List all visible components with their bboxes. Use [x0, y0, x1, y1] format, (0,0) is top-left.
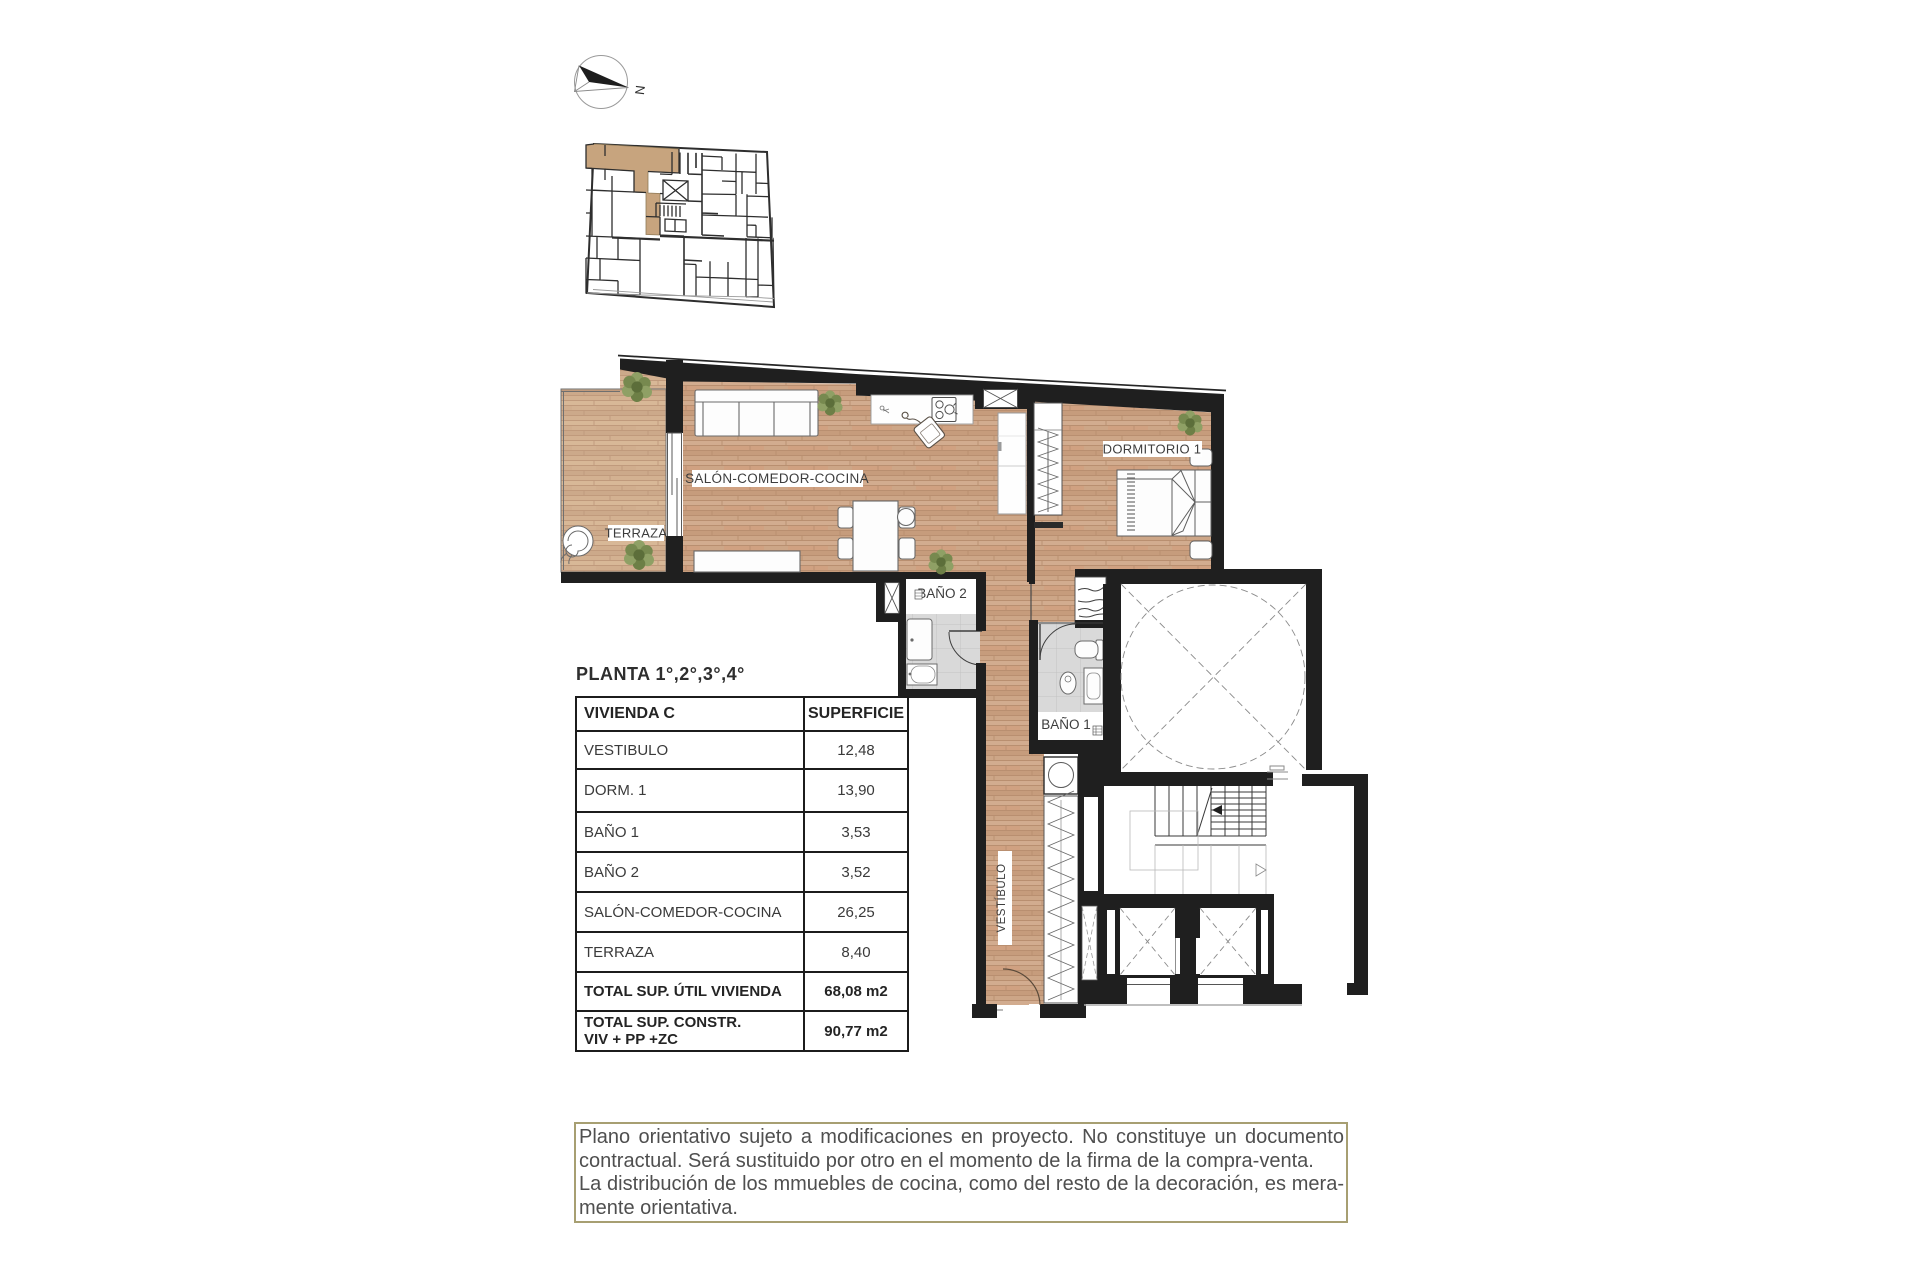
svg-text:N: N [632, 85, 648, 96]
svg-text:DORMITORIO 1: DORMITORIO 1 [1103, 442, 1202, 457]
svg-text:SALÓN-COMEDOR-COCINA: SALÓN-COMEDOR-COCINA [685, 471, 869, 486]
svg-text:BAÑO 1: BAÑO 1 [1041, 717, 1091, 732]
svg-text:BAÑO 2: BAÑO 2 [917, 586, 967, 601]
svg-text:VESTÍBULO: VESTÍBULO [995, 863, 1008, 932]
svg-text:TERRAZA: TERRAZA [605, 526, 668, 541]
